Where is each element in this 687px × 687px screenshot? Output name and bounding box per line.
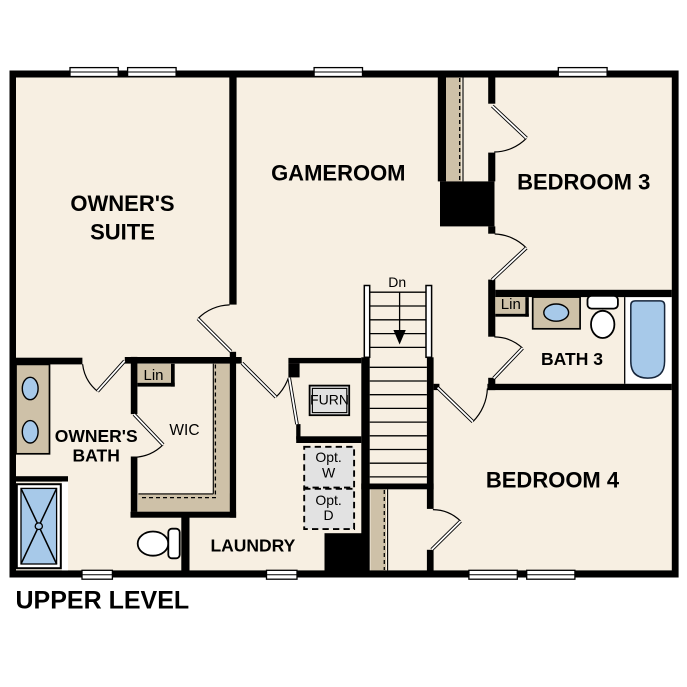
svg-text:FURN: FURN: [310, 392, 349, 408]
svg-text:BATH: BATH: [73, 446, 120, 466]
svg-text:GAMEROOM: GAMEROOM: [271, 160, 405, 185]
svg-text:Lin: Lin: [143, 367, 163, 384]
svg-text:BATH 3: BATH 3: [541, 349, 603, 369]
svg-text:SUITE: SUITE: [90, 220, 155, 245]
svg-text:Dn: Dn: [388, 274, 406, 290]
svg-text:Lin: Lin: [501, 296, 521, 313]
svg-text:D: D: [324, 507, 334, 523]
svg-text:WIC: WIC: [169, 422, 199, 439]
svg-text:Opt.: Opt.: [315, 449, 341, 465]
svg-text:LAUNDRY: LAUNDRY: [210, 536, 295, 556]
svg-text:OWNER'S: OWNER'S: [70, 191, 174, 216]
svg-text:Opt.: Opt.: [315, 492, 341, 508]
svg-text:UPPER LEVEL: UPPER LEVEL: [16, 587, 190, 615]
svg-text:BEDROOM 4: BEDROOM 4: [486, 468, 620, 493]
svg-text:OWNER'S: OWNER'S: [55, 426, 138, 446]
svg-text:W: W: [322, 464, 336, 480]
svg-text:BEDROOM 3: BEDROOM 3: [517, 170, 650, 195]
